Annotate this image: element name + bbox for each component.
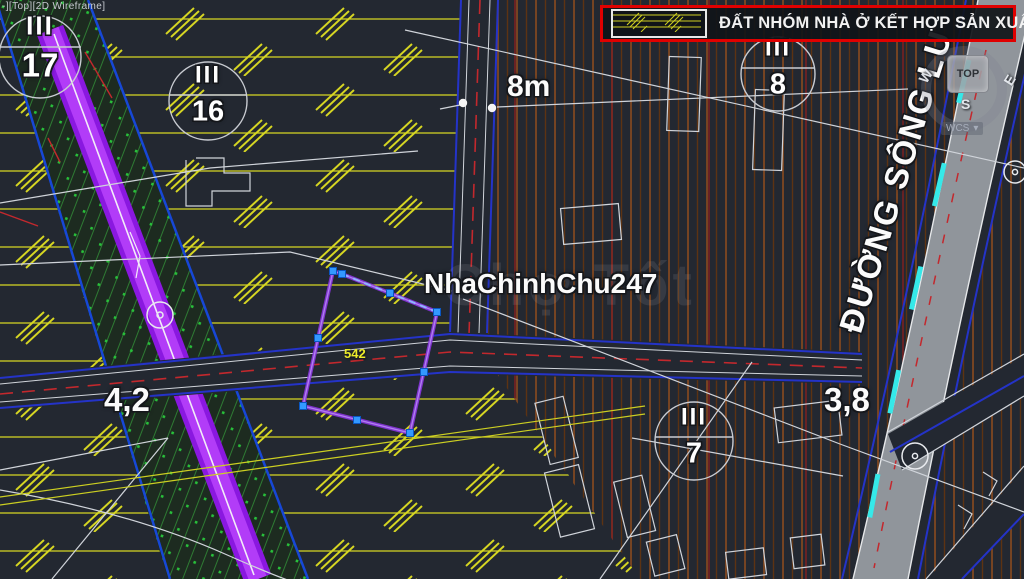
zone-number: 16 <box>192 98 224 127</box>
dimension-8m: 8m <box>507 70 550 104</box>
viewcube[interactable]: TOP W E S WCS ▾ <box>913 46 1021 142</box>
zone-roman: III <box>192 64 224 88</box>
selection-grip[interactable] <box>339 271 346 278</box>
zone-roman: III <box>681 406 707 430</box>
legend-title: ĐẤT NHÓM NHÀ Ở KẾT HỢP SẢN XUẤT <box>719 14 1024 33</box>
selection-grip[interactable] <box>300 403 307 410</box>
lot-number: 542 <box>344 346 366 361</box>
legend-hatch-icon <box>613 11 701 32</box>
viewcube-top-face[interactable]: TOP <box>947 55 989 93</box>
selection-grip[interactable] <box>315 335 322 342</box>
selection-grip[interactable] <box>434 309 441 316</box>
dimension-left: 4,2 <box>104 381 150 419</box>
selection-grip[interactable] <box>407 430 414 437</box>
selection-grip[interactable] <box>330 268 337 275</box>
zone-label-III-7: III 7 <box>681 406 707 469</box>
wcs-dropdown-arrow: ▾ <box>973 123 978 134</box>
viewport-controls[interactable]: -][Top][2D Wireframe] <box>2 1 105 12</box>
advertiser-watermark: NhaChinhChu247 <box>424 268 657 300</box>
selection-grip[interactable] <box>421 369 428 376</box>
wcs-selector[interactable]: WCS ▾ <box>941 122 983 135</box>
selection-grip[interactable] <box>387 290 394 297</box>
zone-number: 17 <box>22 49 59 82</box>
zone-number: 7 <box>681 440 707 469</box>
cad-canvas[interactable]: Chợ Tốt III 17 III 16 III 8 III 7 8m Nha… <box>0 0 1024 579</box>
selection-grip[interactable] <box>354 417 361 424</box>
zone-label-III-16: III 16 <box>192 64 224 127</box>
zone-label-III-17: III 17 <box>22 13 59 82</box>
dimension-right: 3,8 <box>824 381 870 419</box>
zone-number: 8 <box>765 71 791 100</box>
legend-hatch-swatch <box>611 9 707 38</box>
zone-roman: III <box>22 13 59 39</box>
zone-label-III-8: III 8 <box>765 37 791 100</box>
legend-box: ĐẤT NHÓM NHÀ Ở KẾT HỢP SẢN XUẤT <box>600 5 1016 42</box>
viewcube-south[interactable]: S <box>961 96 970 112</box>
wcs-label: WCS <box>946 123 969 134</box>
